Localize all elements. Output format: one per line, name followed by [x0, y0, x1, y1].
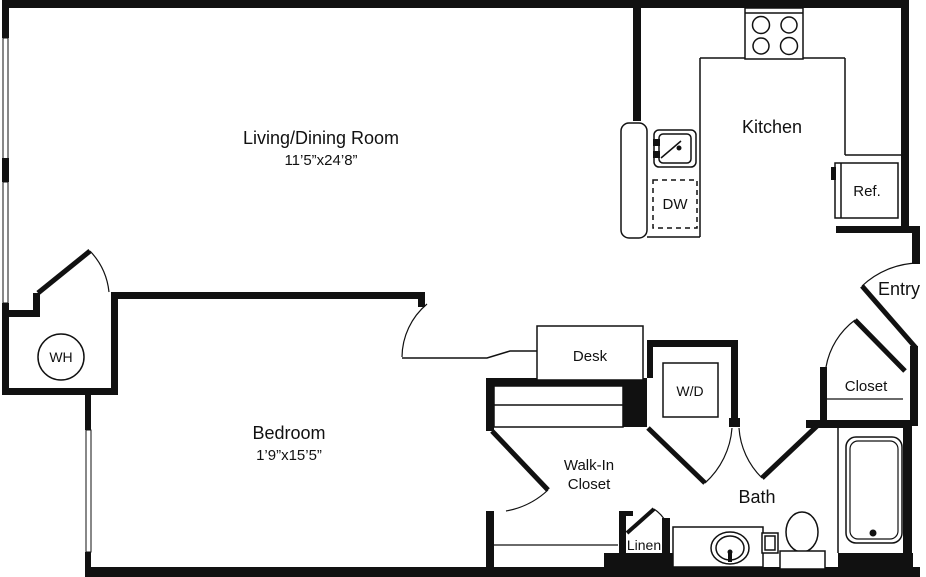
wall-left-mid — [2, 158, 9, 182]
linen-door-arc — [654, 509, 666, 522]
bath-door-arc — [739, 428, 762, 478]
toilet-tank — [780, 551, 825, 569]
room-dims-bedroom: 1’9”x15’5” — [256, 447, 322, 464]
wall-wd-left — [647, 347, 653, 378]
reach-in-closet-outline — [494, 386, 623, 427]
tall-cabinet — [621, 123, 647, 238]
wall-bedroom-door-jamb — [418, 292, 425, 307]
wd-door-arc — [705, 428, 732, 483]
wall-bedroom-left-upper — [85, 393, 91, 430]
toilet-bowl — [786, 512, 818, 552]
wall-bedroom-east-upper — [486, 378, 494, 431]
fixture-label-wd: W/D — [676, 383, 703, 399]
floor-plan-svg: Living/Dining Room 11’5”x24’8” Kitchen B… — [0, 0, 926, 577]
toilet — [780, 512, 825, 569]
fixture-label-ref: Ref. — [853, 183, 881, 200]
wall-wd-top — [647, 340, 738, 347]
wall-right-lower — [903, 423, 912, 572]
walkin-door-arc — [506, 490, 548, 511]
wall-entry-below-door — [910, 346, 918, 426]
wall-living-bedroom — [111, 292, 424, 299]
reach-in-closet — [494, 386, 623, 427]
room-label-bath: Bath — [738, 487, 775, 507]
window-living-2 — [3, 182, 8, 303]
exterior-walls — [2, 0, 920, 577]
vanity-faucet — [728, 553, 732, 562]
room-label-entry-closet: Closet — [845, 378, 888, 395]
wall-linen-left — [619, 511, 626, 553]
room-label-bedroom: Bedroom — [252, 423, 325, 443]
labels: Living/Dining Room 11’5”x24’8” Kitchen B… — [49, 117, 920, 553]
wall-bath-closet — [806, 420, 911, 428]
window-living-1 — [3, 38, 8, 159]
wall-pier-black — [623, 378, 647, 427]
bathtub-drain — [870, 530, 877, 537]
wall-wh-bottom — [2, 388, 118, 395]
kitchen-sink — [653, 130, 696, 167]
room-label-kitchen: Kitchen — [742, 117, 802, 137]
fixture-label-desk: Desk — [573, 348, 608, 365]
wall-kitchen-living — [633, 8, 641, 121]
fixture-label-dw: DW — [663, 196, 689, 213]
wall-fill-tub-bottom — [838, 553, 913, 572]
wall-bedroom-east-lower — [486, 511, 494, 572]
sink-faucet-handle — [653, 151, 660, 158]
wall-kitchen-entry — [836, 226, 920, 233]
wall-entry-above-door — [912, 228, 920, 264]
room-label-living-dining: Living/Dining Room — [243, 128, 399, 148]
wall-wd-right — [731, 340, 738, 420]
bath-door-leaf — [762, 426, 817, 478]
bedroom-door-leaf — [402, 351, 537, 358]
wall-linen-top-stub — [619, 511, 633, 516]
floor-plan: Living/Dining Room 11’5”x24’8” Kitchen B… — [0, 0, 926, 577]
walkin-door-leaf — [492, 431, 548, 490]
wh-door-leaf — [38, 251, 90, 293]
sink-drain — [677, 146, 682, 151]
bedroom-door-arc — [402, 304, 427, 357]
wall-top — [2, 0, 908, 8]
bathtub — [838, 428, 902, 553]
room-label-walkin-line2: Closet — [568, 476, 611, 493]
interior-walls — [111, 8, 920, 572]
fixture-label-wh: WH — [49, 349, 72, 365]
wall-right-upper — [901, 0, 909, 231]
wall-fill-linen-bottom — [604, 553, 674, 572]
window-bedroom — [86, 430, 91, 552]
vanity — [673, 527, 778, 567]
wd-door-leaf — [648, 428, 705, 483]
room-label-linen: Linen — [627, 537, 661, 553]
room-dims-living-dining: 11’5”x24’8” — [284, 152, 357, 169]
stove — [745, 8, 803, 59]
wall-linen-right — [662, 518, 670, 553]
room-label-entry: Entry — [878, 279, 920, 299]
stove-body — [745, 8, 803, 59]
wh-door-arc — [90, 251, 109, 292]
wall-wh-right — [111, 293, 118, 395]
wall-left-upper — [2, 0, 9, 38]
refrigerator-handle — [831, 167, 836, 180]
entry-closet-door-arc — [826, 320, 855, 367]
sink-faucet-handle — [653, 139, 660, 146]
wall-wh-notch-v — [33, 293, 40, 317]
wall-wd-door-stub — [729, 418, 740, 427]
bathtub-outer — [846, 437, 902, 543]
wall-closet-left — [820, 367, 827, 425]
room-label-walkin-line1: Walk-In — [564, 457, 614, 474]
